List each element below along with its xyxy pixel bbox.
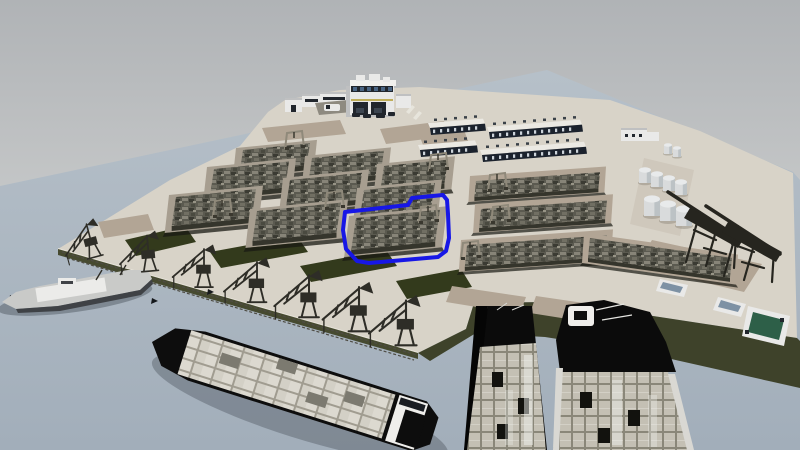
crane-house bbox=[196, 265, 211, 274]
roof-vent bbox=[553, 118, 556, 121]
warehouse-door bbox=[527, 153, 529, 157]
warehouse-door bbox=[506, 155, 508, 159]
building-door bbox=[632, 134, 635, 137]
container-highlight bbox=[524, 355, 533, 445]
rtg-wheel bbox=[491, 221, 495, 224]
roof-vent bbox=[573, 116, 576, 119]
warehouse-door bbox=[520, 131, 522, 135]
window bbox=[374, 87, 378, 91]
car bbox=[388, 112, 395, 116]
canopy-stripe bbox=[351, 99, 393, 101]
window bbox=[388, 87, 392, 91]
ship-windows bbox=[61, 281, 73, 284]
warehouse-door bbox=[465, 148, 467, 152]
roof-unit bbox=[369, 74, 380, 81]
window bbox=[367, 87, 371, 91]
building-door bbox=[291, 105, 296, 112]
warehouse-door bbox=[562, 128, 564, 132]
roof-unit bbox=[383, 77, 390, 82]
barge-detail bbox=[780, 318, 784, 322]
warehouse-door bbox=[485, 157, 487, 161]
rtg-wheel bbox=[477, 255, 481, 258]
warehouse-door bbox=[492, 134, 494, 138]
storage-tank[interactable] bbox=[659, 200, 677, 224]
warehouse-door bbox=[454, 128, 456, 132]
roof-vent bbox=[513, 121, 516, 124]
rtg-wheel bbox=[461, 257, 465, 260]
warehouse-door bbox=[475, 126, 477, 129]
warehouse-door bbox=[520, 154, 522, 158]
warehouse-door bbox=[548, 152, 550, 156]
tank-dome bbox=[675, 179, 687, 184]
building-windows bbox=[305, 99, 318, 102]
truck-at-dock bbox=[374, 108, 382, 113]
car bbox=[352, 113, 360, 117]
rtg-wheel bbox=[429, 169, 433, 172]
tank-dome bbox=[639, 167, 651, 172]
car bbox=[363, 114, 371, 118]
container-gap bbox=[598, 428, 610, 443]
ship-windows bbox=[574, 311, 587, 320]
crane-house bbox=[249, 279, 264, 288]
rtg-wheel bbox=[419, 221, 423, 224]
warehouse-door bbox=[447, 128, 449, 132]
roof-vent bbox=[424, 141, 427, 144]
roof-vent bbox=[546, 141, 549, 144]
rtg-wheel bbox=[341, 205, 345, 208]
crane-house bbox=[141, 250, 155, 260]
container-gap bbox=[580, 392, 592, 408]
warehouse-door bbox=[499, 133, 501, 137]
building-door bbox=[639, 134, 642, 137]
roof-vent bbox=[566, 139, 569, 142]
roof-vent bbox=[444, 139, 447, 142]
container-highlight bbox=[612, 380, 622, 445]
warehouse-door bbox=[440, 129, 442, 133]
scene-canvas[interactable] bbox=[0, 0, 800, 450]
rtg-wheel bbox=[213, 215, 217, 218]
building-body bbox=[396, 96, 411, 108]
tank-dome bbox=[644, 195, 660, 202]
storage-tank[interactable] bbox=[672, 146, 682, 158]
roof-unit bbox=[356, 75, 365, 81]
container-highlight bbox=[648, 395, 657, 447]
roof-vent bbox=[434, 119, 437, 122]
storage-tank[interactable] bbox=[638, 167, 652, 185]
warehouse-door bbox=[506, 132, 508, 136]
roof-vent bbox=[454, 117, 457, 120]
warehouse-door bbox=[451, 149, 453, 153]
roof-vent bbox=[506, 144, 509, 147]
warehouse-door bbox=[576, 149, 578, 153]
warehouse-door bbox=[458, 149, 460, 153]
warehouse-door bbox=[569, 150, 571, 154]
roof-vent bbox=[556, 140, 559, 143]
roof-vent bbox=[454, 138, 457, 141]
container-gap bbox=[628, 410, 640, 426]
roof-vent bbox=[434, 140, 437, 143]
window bbox=[381, 87, 385, 91]
rtg-wheel bbox=[445, 167, 449, 170]
storage-tank[interactable] bbox=[643, 195, 661, 219]
warehouse-door bbox=[527, 131, 529, 135]
storage-tank[interactable] bbox=[663, 143, 673, 155]
rtg-wheel bbox=[507, 219, 511, 222]
warehouse-door bbox=[541, 130, 543, 134]
bus-windshield bbox=[326, 105, 330, 109]
crane-house bbox=[397, 319, 414, 330]
building-door bbox=[625, 134, 628, 137]
warehouse-door bbox=[461, 127, 463, 131]
warehouse-door bbox=[433, 130, 435, 134]
warehouse-door bbox=[534, 130, 536, 134]
roof-vent bbox=[474, 115, 477, 118]
tank-dome bbox=[651, 171, 663, 176]
warehouse-door bbox=[569, 127, 571, 131]
car bbox=[376, 114, 385, 118]
warehouse-door bbox=[541, 152, 543, 156]
tank-dome bbox=[664, 143, 672, 147]
tank-dome bbox=[660, 200, 676, 207]
crane-house bbox=[300, 292, 316, 302]
window bbox=[360, 87, 364, 91]
rtg-wheel bbox=[285, 147, 289, 150]
terminal-office-building[interactable] bbox=[346, 74, 396, 117]
roof-vent bbox=[516, 143, 519, 146]
roof-vent bbox=[533, 119, 536, 122]
container-gap bbox=[492, 372, 503, 387]
barge-detail bbox=[745, 330, 749, 334]
rtg-wheel bbox=[301, 145, 305, 148]
office-building-small-1[interactable] bbox=[285, 98, 302, 112]
roof-vent bbox=[486, 146, 489, 149]
roof-vent bbox=[464, 116, 467, 119]
building-annex bbox=[647, 132, 659, 141]
office-building-small-4[interactable] bbox=[396, 94, 411, 108]
storage-tank[interactable] bbox=[650, 171, 664, 189]
roof-vent bbox=[536, 142, 539, 145]
rtg-wheel bbox=[488, 189, 492, 192]
storage-tank[interactable] bbox=[674, 179, 688, 197]
roof-vent bbox=[496, 145, 499, 148]
warehouse-door bbox=[534, 153, 536, 157]
building-side-face bbox=[346, 86, 350, 117]
container-highlight bbox=[505, 390, 513, 445]
roof-vent bbox=[543, 119, 546, 122]
warehouse-door bbox=[513, 154, 515, 158]
roof-vent bbox=[523, 120, 526, 123]
truck-at-dock bbox=[356, 108, 364, 113]
rtg-wheel bbox=[504, 187, 508, 190]
roof-vent bbox=[576, 138, 579, 141]
warehouse-door bbox=[468, 127, 470, 131]
roof-vent bbox=[503, 122, 506, 125]
tank-dome bbox=[673, 146, 681, 150]
roof-vent bbox=[444, 118, 447, 121]
crane-house bbox=[350, 305, 367, 315]
warehouse-door bbox=[499, 155, 501, 159]
rtg-wheel bbox=[229, 213, 233, 216]
roof-vent bbox=[563, 117, 566, 120]
roof-vent bbox=[493, 123, 496, 126]
warehouse-door bbox=[423, 152, 425, 156]
building-windows bbox=[323, 97, 345, 100]
warehouse-door bbox=[562, 150, 564, 154]
window bbox=[353, 87, 357, 91]
warehouse-door bbox=[492, 156, 494, 160]
warehouse-door bbox=[513, 132, 515, 136]
warehouse-door bbox=[555, 129, 557, 133]
warehouse-door bbox=[548, 129, 550, 133]
tank-dome bbox=[663, 175, 675, 180]
rtg-wheel bbox=[435, 219, 439, 222]
warehouse-door bbox=[555, 151, 557, 155]
window-band bbox=[351, 86, 393, 92]
port-terminal-3d-viewport[interactable] bbox=[0, 0, 800, 450]
roof-vent bbox=[526, 142, 529, 145]
rtg-wheel bbox=[325, 207, 329, 210]
roof-vent bbox=[464, 137, 467, 140]
